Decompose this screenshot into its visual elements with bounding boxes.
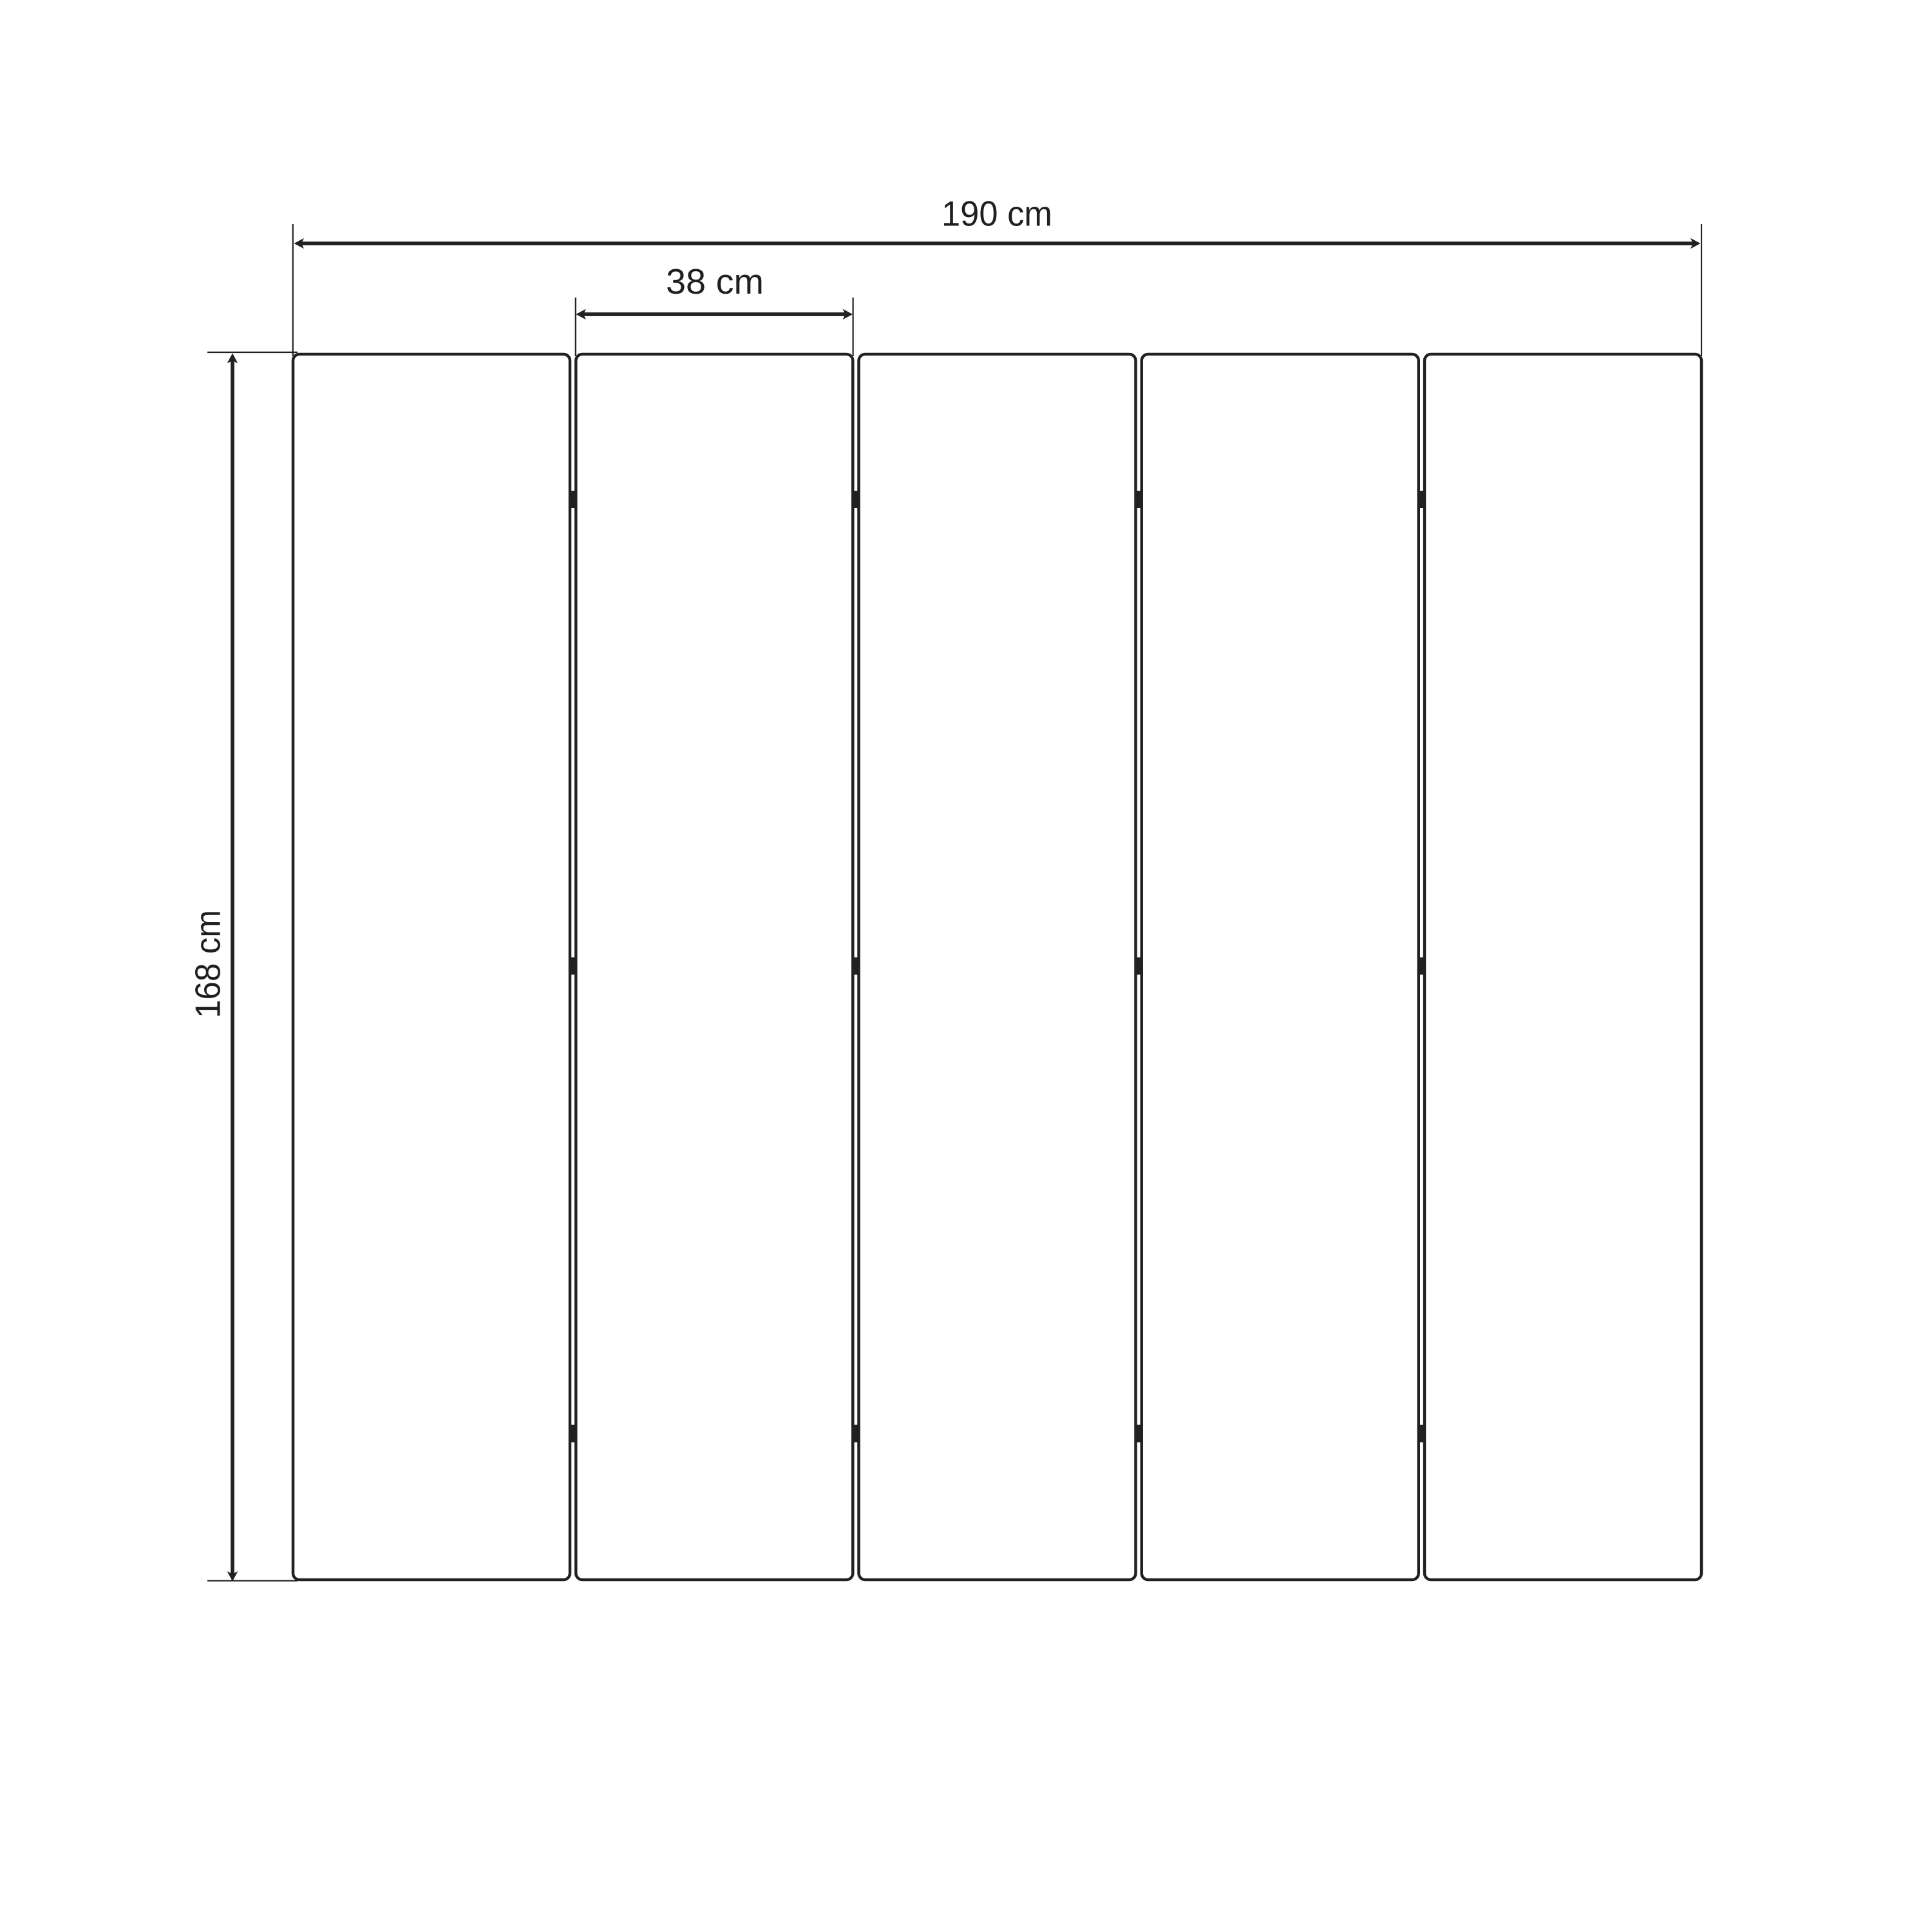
svg-text:168 cm: 168 cm [188,910,228,1018]
svg-text:190 cm: 190 cm [942,194,1052,234]
svg-text:38 cm: 38 cm [666,261,764,301]
